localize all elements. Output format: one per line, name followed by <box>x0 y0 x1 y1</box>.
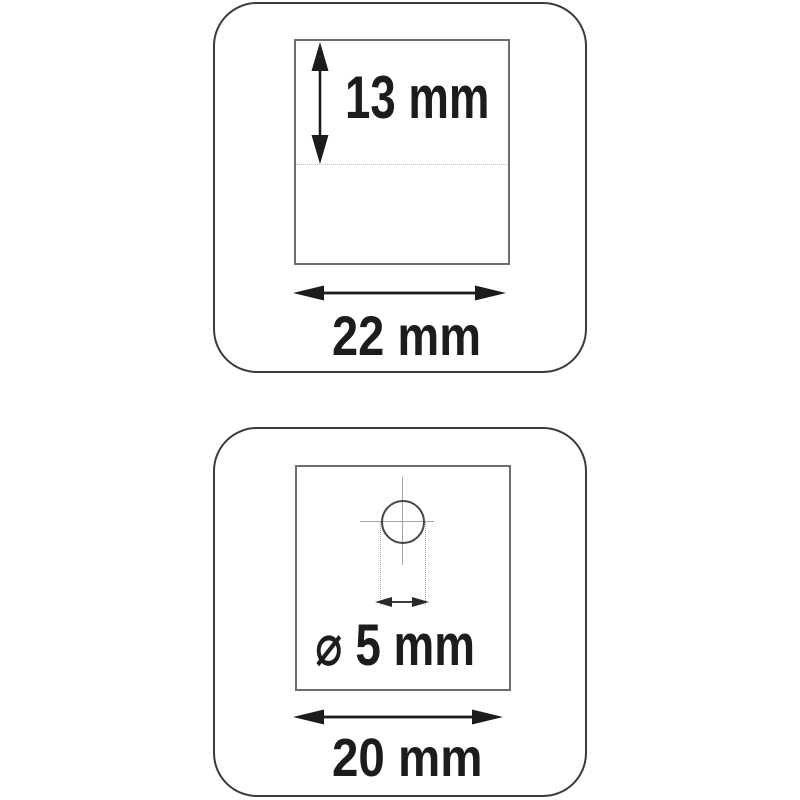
panel-top-content: 13 mm 22 mm <box>217 6 583 369</box>
panel-top: 13 mm 22 mm <box>213 2 587 373</box>
hole-circle <box>381 500 425 544</box>
diameter-guide-line-left <box>380 522 381 605</box>
hole-diameter-label: ⌀ 5 mm <box>315 617 475 675</box>
panel-bottom-content: ⌀ 5 mm 20 mm <box>217 431 583 793</box>
panel-bottom: ⌀ 5 mm 20 mm <box>213 427 587 797</box>
height-dimension-label: 13 mm <box>345 68 489 128</box>
plate-width-dimension-arrow <box>293 707 503 727</box>
hole-diameter-arrow <box>375 595 429 609</box>
dimension-drawing: 13 mm 22 mm <box>0 0 800 800</box>
depth-dashed-guide-line <box>296 164 508 165</box>
diameter-guide-line-right <box>425 522 426 605</box>
width-dimension-arrow <box>293 283 506 303</box>
height-dimension-arrow <box>308 42 332 164</box>
plate-width-dimension-label: 20 mm <box>332 731 483 785</box>
width-dimension-label: 22 mm <box>332 308 481 364</box>
